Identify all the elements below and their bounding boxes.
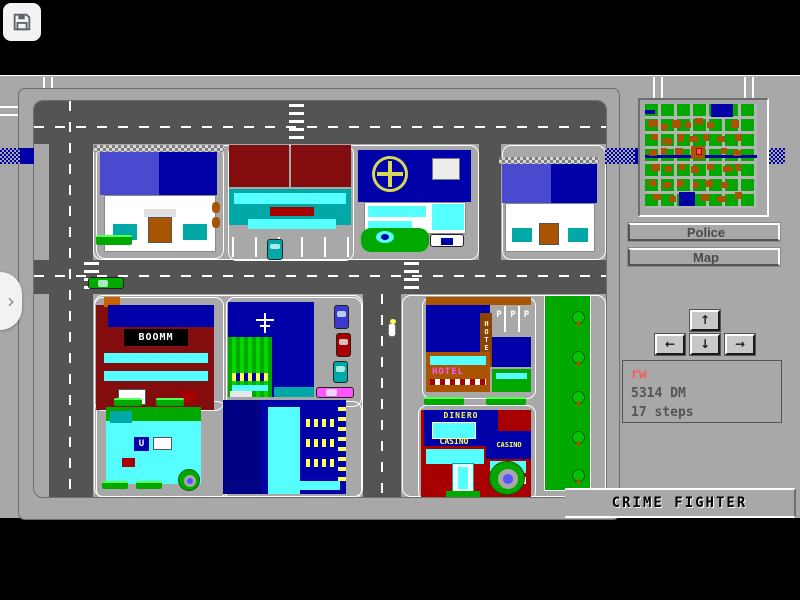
minimap-block (675, 148, 683, 155)
minimap-block (735, 192, 742, 199)
building-shop-redroof (270, 207, 314, 216)
building-office-helipad (432, 204, 464, 230)
fountain-water (381, 234, 389, 240)
minimap-block (672, 120, 681, 128)
building-casino: DINERO (428, 411, 494, 421)
minimap-block (689, 136, 698, 142)
building-hotel: P (508, 309, 518, 321)
building-store-northwest (182, 223, 208, 241)
ridge-line (744, 77, 746, 98)
building-office-blue (274, 387, 314, 397)
building-hotel (496, 373, 527, 379)
prop-car (267, 239, 283, 260)
minimap-block (731, 120, 739, 128)
minimap-block (677, 180, 684, 187)
car-window (326, 389, 337, 395)
prop-bench (136, 481, 162, 489)
building-store-northwest (159, 152, 217, 195)
crosswalk (289, 104, 304, 142)
building-hotel (430, 379, 486, 385)
river-band (0, 148, 20, 164)
lane-marking (69, 101, 71, 497)
prop-bench (102, 481, 128, 489)
ridge-line (43, 77, 45, 88)
building-hotel: P (494, 309, 504, 321)
status-box: rw 5314 DM 17 steps (622, 360, 782, 423)
building-shop-redroof (291, 145, 351, 187)
minimap-block (735, 164, 741, 171)
building-store-northeast (551, 164, 597, 203)
car-window (98, 280, 108, 287)
minimap-block (661, 148, 667, 154)
tree-trunk (577, 479, 580, 484)
street-vertical-north (479, 144, 501, 260)
city-map-viewport[interactable]: BOOMMUPPPHOTELHOTELDINEROCASINOCASINO (33, 100, 607, 498)
minimap-block (661, 124, 668, 130)
minimap-block (685, 122, 691, 128)
building-subway-glass (110, 411, 132, 423)
minimap-player-dot (697, 149, 701, 154)
minimap-water (645, 110, 655, 114)
building-office-blue (232, 373, 268, 381)
tree-trunk (577, 321, 580, 326)
minimap-block (649, 180, 656, 186)
game-screen: BOOMMUPPPHOTELHOTELDINEROCASINOCASINO Po… (0, 75, 800, 518)
building-cinema-boomm (104, 371, 208, 381)
building-tower-darkblue (306, 439, 340, 447)
minimap-block (679, 164, 685, 170)
building-casino (446, 491, 480, 497)
street-left (49, 101, 93, 497)
prop-car-h (316, 387, 354, 398)
screen: BOOMMUPPPHOTELHOTELDINEROCASINOCASINO Po… (0, 0, 800, 600)
minimap-block (703, 134, 709, 141)
river-band (605, 148, 635, 164)
minimap-block (649, 150, 657, 156)
building-subway-glass: U (134, 437, 149, 451)
lane-marking (34, 126, 606, 128)
ridge-line (661, 77, 663, 98)
police-stripe (441, 238, 453, 245)
building-tower-darkblue (338, 407, 346, 481)
minimap-block (669, 196, 676, 202)
minimap-block (707, 122, 714, 128)
lane-marking (381, 294, 383, 497)
prop-bench (96, 235, 132, 245)
ridge-line (51, 77, 53, 88)
prop-hydrant (212, 202, 220, 213)
prop-bench (424, 397, 464, 405)
building-office-helipad (377, 172, 403, 176)
tree-trunk (577, 441, 580, 446)
prop-car (333, 361, 348, 383)
minimap-block (735, 134, 742, 141)
minimap-block (705, 180, 713, 187)
chevron-right-icon: › (7, 289, 15, 313)
building-tower-darkblue (306, 459, 340, 467)
ridge-line (0, 114, 18, 116)
building-cinema-boomm: BOOMM (124, 329, 188, 346)
building-hotel (492, 337, 531, 367)
prop-car (334, 305, 349, 329)
minimap-water (711, 104, 733, 117)
building-shop-redroof (229, 145, 289, 187)
building-office-helipad (361, 228, 429, 252)
prop-tree (572, 431, 585, 444)
person-head (390, 319, 396, 324)
prop-tree (572, 469, 585, 482)
building-casino: CASINO (488, 441, 530, 450)
police-button[interactable]: Police (628, 223, 780, 241)
minimap (645, 104, 757, 208)
minimap-block (691, 166, 699, 173)
player-name: rw (631, 365, 781, 384)
minimap-block (651, 134, 658, 140)
minimap-block (721, 148, 727, 154)
minimap-block (717, 136, 725, 142)
river-band (769, 148, 785, 164)
save-button[interactable] (3, 3, 41, 41)
car-window (337, 311, 346, 317)
game-title: CRIME FIGHTER (565, 488, 796, 518)
building-cinema-boomm (104, 353, 208, 363)
building-casino: CASINO (426, 437, 482, 446)
building-tower-darkblue (306, 419, 340, 427)
building-subway-glass (153, 437, 172, 450)
prop-fountain (178, 469, 200, 491)
minimap-block (723, 166, 732, 172)
prop-hydrant (212, 217, 220, 228)
dpad-left-button[interactable]: ← (655, 334, 685, 355)
building-shop-redroof (234, 193, 346, 204)
car-window (270, 244, 280, 249)
building-store-northwest (94, 145, 224, 152)
street-top (34, 101, 606, 144)
minimap-block (651, 164, 660, 171)
steps-value: 17 steps (631, 403, 781, 422)
building-store-northeast (511, 227, 533, 243)
building-hotel (518, 306, 520, 332)
building-subway-glass (122, 458, 135, 467)
fountain-water (503, 474, 513, 484)
prop-parking (232, 237, 350, 257)
tree-trunk (577, 361, 580, 366)
prop-police-car (430, 234, 464, 247)
crosswalk (404, 262, 419, 292)
building-cinema-boomm (108, 305, 214, 327)
building-hotel: P (522, 309, 531, 321)
minimap-block (653, 194, 661, 200)
building-office-blue (230, 391, 252, 397)
prop-bench (114, 398, 142, 406)
floppy-disk-icon (11, 11, 33, 33)
minimap-block (663, 182, 671, 188)
minimap-block (721, 182, 728, 188)
building-store-northwest (148, 217, 172, 243)
prop-fountain (489, 461, 525, 495)
building-store-northwest (144, 209, 176, 217)
building-tower-darkblue (274, 481, 340, 490)
prop-person (388, 323, 396, 337)
prop-bench (156, 398, 184, 406)
building-store-northeast (567, 227, 589, 243)
building-office-blue (256, 319, 274, 321)
building-hotel (426, 297, 531, 305)
minimap-block (663, 138, 672, 145)
building-store-northwest (100, 152, 159, 195)
minimap-block (701, 194, 709, 201)
building-store-northeast (502, 164, 551, 203)
minimap-block (693, 182, 699, 188)
minimap-block (665, 166, 672, 172)
minimap-block (695, 118, 703, 125)
building-store-northeast (539, 223, 559, 245)
building-office-helipad (432, 158, 460, 180)
prop-car (336, 333, 351, 357)
prop-tree (572, 391, 585, 404)
ridge-line (0, 106, 18, 108)
building-hotel (430, 356, 486, 365)
minimap-block (678, 134, 684, 142)
car-window (339, 339, 348, 345)
building-office-helipad (368, 206, 426, 217)
prop-fountain-small (376, 231, 394, 243)
river-band (20, 148, 34, 164)
ridge-line (752, 77, 754, 98)
building-office-blue (260, 325, 270, 327)
money-value: 5314 DM (631, 384, 781, 403)
minimap-block (648, 120, 658, 127)
minimap-block (707, 164, 714, 170)
minimap-block (733, 150, 741, 156)
building-hotel (504, 306, 506, 332)
prop-tree (572, 351, 585, 364)
dpad-down-button[interactable]: ↓ (690, 334, 720, 355)
ridge-line (653, 77, 655, 98)
dpad-up-button[interactable]: ↑ (690, 310, 720, 331)
building-shop-redroof (248, 219, 336, 229)
building-casino (458, 467, 468, 489)
building-store-northeast (499, 157, 599, 164)
prop-car-h (88, 277, 124, 289)
map-button[interactable]: Map (628, 248, 780, 266)
building-hotel: HOTEL (428, 367, 468, 378)
prop-tree (572, 311, 585, 324)
dpad-right-button[interactable]: → (725, 334, 755, 355)
building-office-blue (264, 313, 266, 333)
car-window (336, 366, 345, 371)
building-casino (426, 449, 484, 464)
minimap-block (717, 196, 726, 202)
tree-trunk (577, 401, 580, 406)
minimap-water (679, 192, 695, 206)
prop-bench (486, 397, 526, 405)
building-tower-darkblue (223, 400, 261, 494)
